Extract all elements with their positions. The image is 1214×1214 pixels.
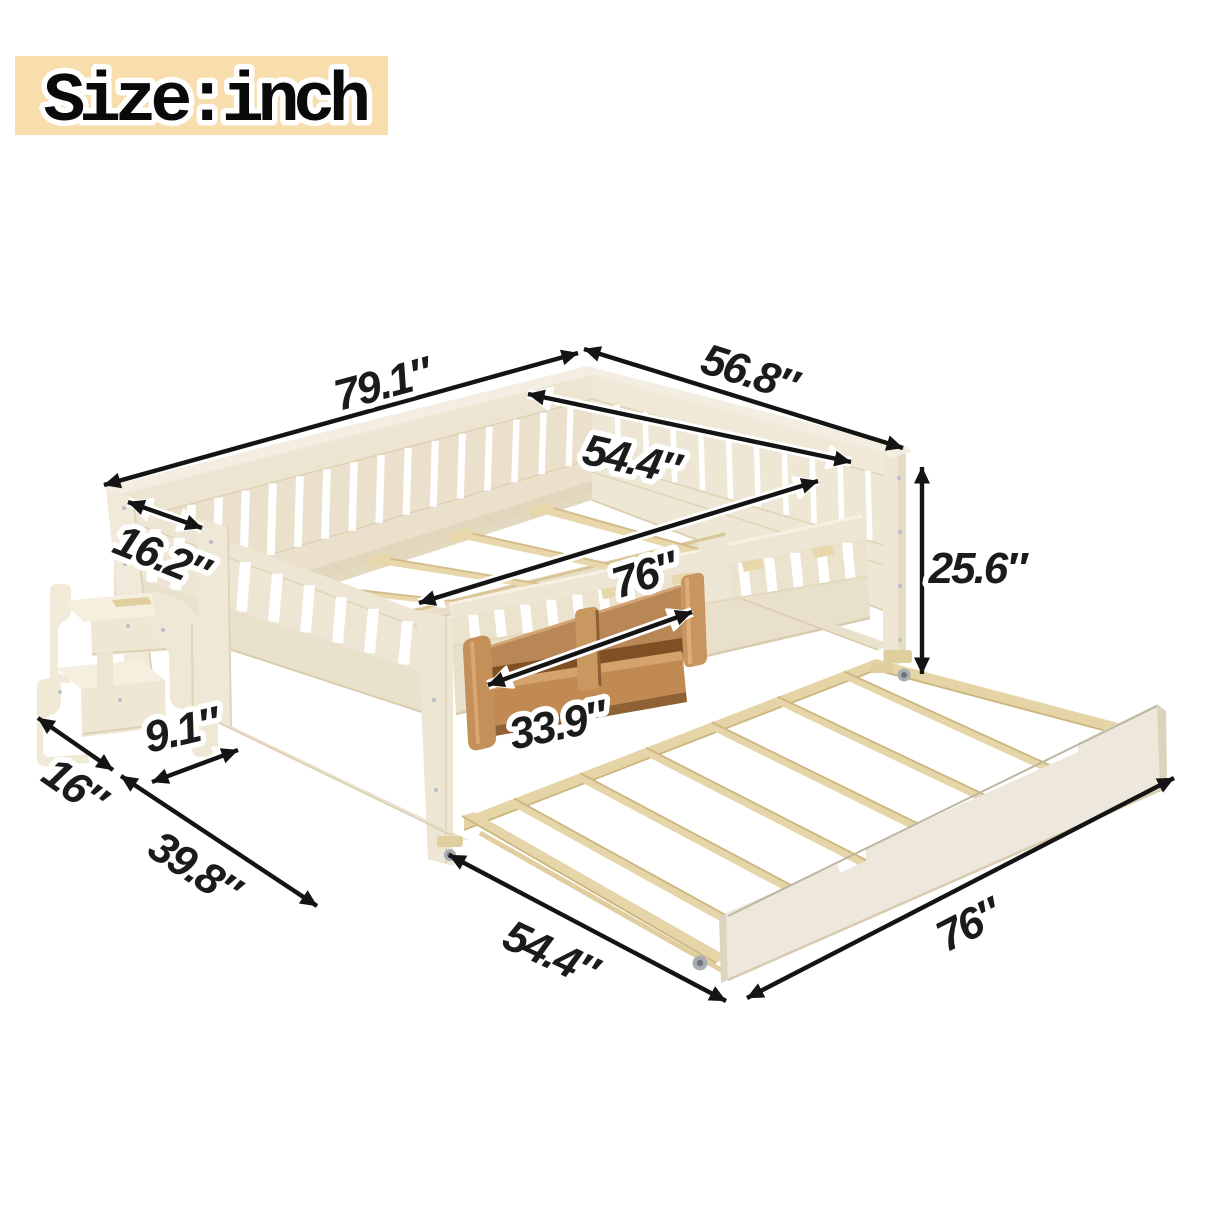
svg-text:Size:inch: Size:inch xyxy=(43,63,367,142)
svg-text:25.6″: 25.6″ xyxy=(928,544,1030,593)
